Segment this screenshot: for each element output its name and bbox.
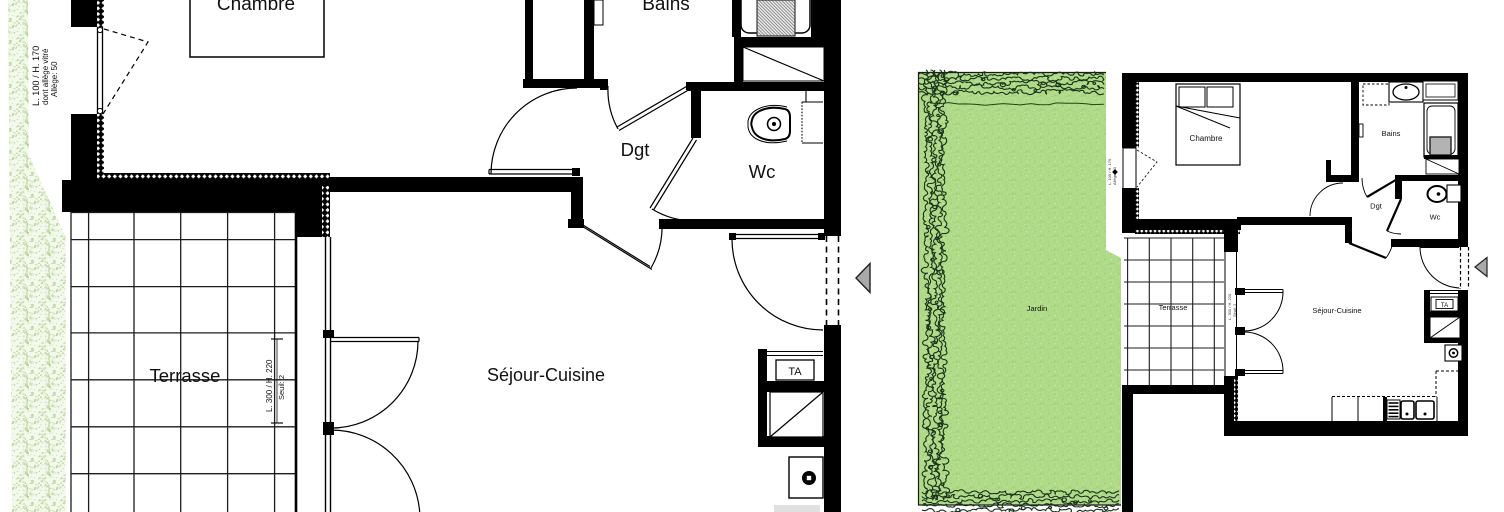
svg-text:Dgt: Dgt [621,139,650,160]
svg-text:dont allège vitré: dont allège vitré [41,48,50,105]
svg-text:L. 100 / H. 170: L. 100 / H. 170 [31,46,41,106]
svg-text:Chambre: Chambre [217,0,295,15]
svg-text:Wc: Wc [1430,213,1441,222]
svg-text:Jardin: Jardin [1027,304,1047,313]
svg-text:Allège: 50: Allège: 50 [50,61,59,97]
svg-text:Wc: Wc [749,161,776,182]
svg-text:Séjour-Cuisine: Séjour-Cuisine [487,365,605,385]
svg-text:Allège: 50: Allège: 50 [1112,166,1117,185]
svg-text:Seuil: 2: Seuil: 2 [277,375,286,400]
svg-text:Séjour-Cuisine: Séjour-Cuisine [1312,306,1361,315]
svg-text:TA: TA [788,366,802,378]
svg-text:Terrasse: Terrasse [150,365,221,386]
svg-text:Bains: Bains [642,0,690,15]
svg-text:Dgt: Dgt [1370,202,1383,211]
svg-text:TA: TA [1441,303,1448,309]
svg-text:L. 300 / H. 220: L. 300 / H. 220 [265,359,274,412]
svg-text:Chambre: Chambre [1190,134,1223,143]
svg-text:Seuil: 2: Seuil: 2 [1232,303,1237,317]
svg-text:Bains: Bains [1382,129,1401,138]
svg-text:Terrasse: Terrasse [1159,303,1188,312]
